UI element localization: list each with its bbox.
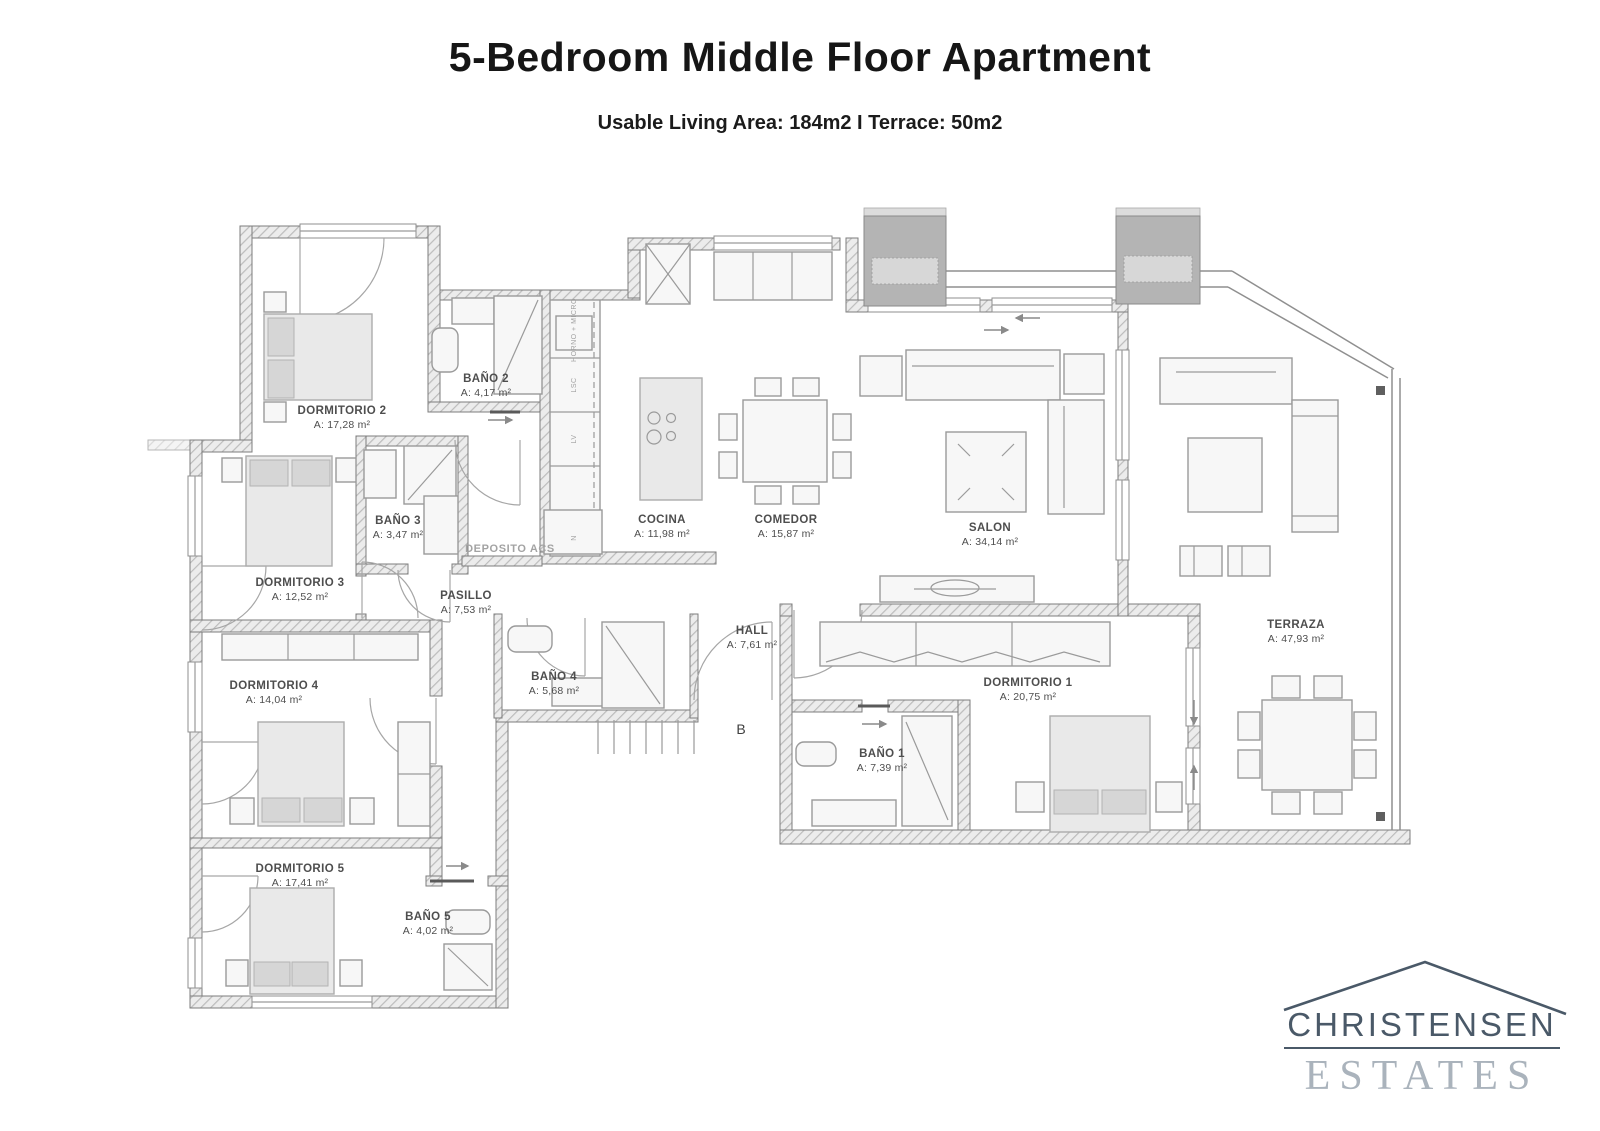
bedroom5-furniture bbox=[226, 888, 362, 994]
svg-text:N: N bbox=[571, 535, 578, 541]
logo-line1: CHRISTENSEN bbox=[1262, 1006, 1582, 1044]
floorplan-page: 5-Bedroom Middle Floor Apartment Usable … bbox=[0, 0, 1600, 1131]
bathroom3-fixtures bbox=[364, 446, 458, 554]
bathroom4-fixtures bbox=[508, 622, 664, 708]
bedroom2-furniture bbox=[264, 292, 372, 422]
logo-line2: ESTATES bbox=[1262, 1052, 1582, 1100]
dining-furniture bbox=[719, 378, 851, 504]
bedroom3-furniture bbox=[222, 456, 356, 566]
svg-text:HORNO + MICRO: HORNO + MICRO bbox=[571, 298, 578, 362]
bathroom1-fixtures bbox=[796, 716, 952, 826]
svg-text:LV: LV bbox=[571, 434, 578, 443]
logo-divider bbox=[1284, 1047, 1560, 1049]
bedroom4-furniture bbox=[222, 634, 430, 826]
svg-text:LSC: LSC bbox=[571, 377, 578, 392]
brand-logo: CHRISTENSEN ESTATES bbox=[1262, 946, 1582, 1116]
bathroom2-fixtures bbox=[432, 296, 542, 394]
living-room-furniture bbox=[860, 350, 1104, 602]
bathroom5-fixtures bbox=[444, 910, 492, 990]
stairs bbox=[598, 720, 694, 754]
